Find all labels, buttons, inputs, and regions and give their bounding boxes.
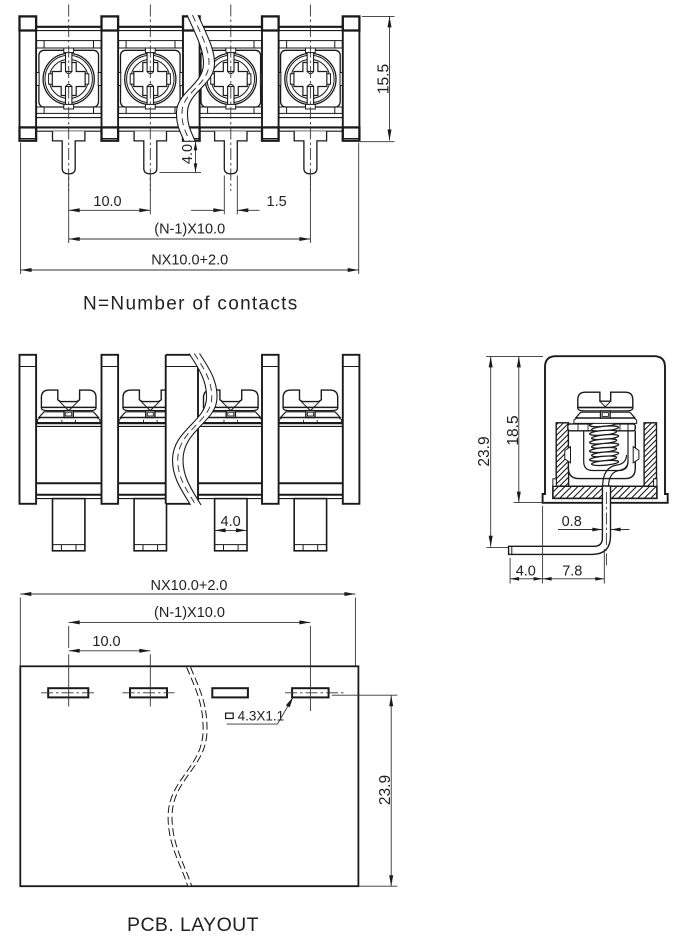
svg-text:PCB. LAYOUT: PCB. LAYOUT [127,914,259,936]
svg-text:15.5: 15.5 [375,64,392,94]
svg-text:N=Number of contacts: N=Number of contacts [83,294,299,315]
svg-text:NX10.0+2.0: NX10.0+2.0 [151,578,228,594]
svg-text:0.8: 0.8 [562,514,582,530]
svg-text:(N-1)X10.0: (N-1)X10.0 [154,605,225,621]
svg-text:1.5: 1.5 [267,194,287,210]
svg-text:23.9: 23.9 [476,436,493,466]
svg-text:4.3X1.1: 4.3X1.1 [238,708,285,723]
svg-text:4.0: 4.0 [516,564,536,580]
svg-text:4.0: 4.0 [221,514,241,530]
svg-text:7.8: 7.8 [562,564,582,580]
svg-text:10.0: 10.0 [93,194,121,210]
svg-text:10.0: 10.0 [92,634,120,650]
svg-text:4.0: 4.0 [180,144,196,164]
svg-text:18.5: 18.5 [505,415,522,445]
svg-text:(N-1)X10.0: (N-1)X10.0 [154,222,225,238]
svg-text:NX10.0+2.0: NX10.0+2.0 [151,253,228,269]
svg-text:23.9: 23.9 [377,775,394,805]
